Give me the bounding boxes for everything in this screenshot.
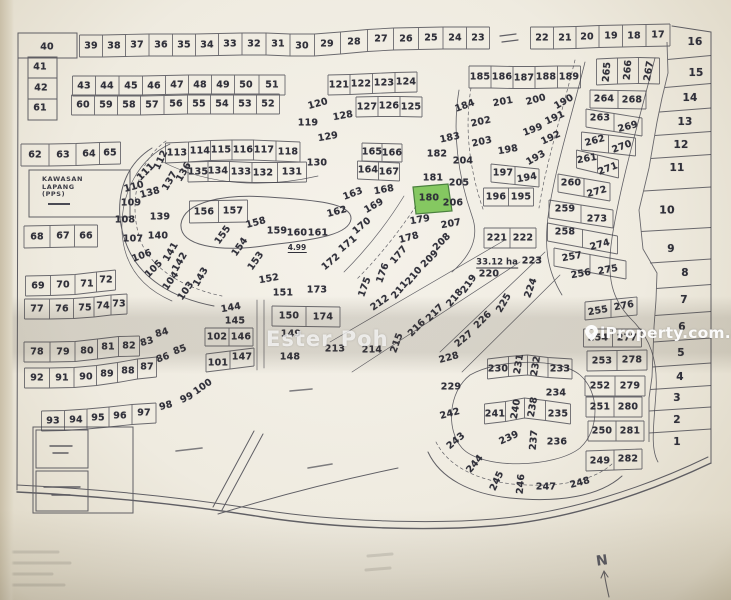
lot-116-label: 116 bbox=[233, 145, 253, 156]
lot-140-label: 140 bbox=[148, 231, 168, 242]
lot-80-label: 80 bbox=[80, 346, 94, 357]
lot-68-label: 68 bbox=[30, 232, 44, 243]
brand-watermark-text: iProperty.com.my bbox=[600, 324, 731, 342]
lot-251-label: 251 bbox=[590, 402, 610, 413]
agent-watermark: Ester Poh bbox=[266, 327, 389, 351]
lot-185-label: 185 bbox=[470, 72, 490, 83]
lot-123-label: 123 bbox=[374, 78, 394, 89]
lot-180-label[interactable]: 180 bbox=[419, 193, 439, 204]
lot-250-label: 250 bbox=[592, 426, 612, 437]
lot-109-label: 109 bbox=[121, 198, 141, 209]
lot-21-label: 21 bbox=[558, 33, 572, 44]
lot-268-label: 268 bbox=[622, 95, 642, 106]
lot-114-label: 114 bbox=[190, 146, 210, 157]
lot-205-label: 205 bbox=[449, 178, 469, 189]
lot-150-label: 150 bbox=[279, 311, 299, 322]
lot-127-label: 127 bbox=[357, 102, 377, 113]
lot-36-label: 36 bbox=[154, 40, 168, 51]
lot-74-label: 74 bbox=[96, 301, 110, 312]
lot-257-label: 257 bbox=[561, 250, 583, 264]
lot-19-label: 19 bbox=[604, 31, 618, 42]
lot-220-label: 220 bbox=[479, 269, 499, 280]
lot-13-label: 13 bbox=[677, 116, 692, 128]
lot-189-label: 189 bbox=[559, 72, 579, 83]
lot-202-label: 202 bbox=[470, 114, 492, 129]
lot-56-label: 56 bbox=[169, 99, 183, 110]
lot-221-label: 221 bbox=[487, 233, 507, 244]
lot-247-label: 247 bbox=[536, 482, 556, 493]
lot-151-label: 151 bbox=[273, 288, 293, 299]
lot-126-label: 126 bbox=[379, 101, 399, 112]
lot-91-label: 91 bbox=[55, 373, 69, 384]
lot-216-label: 216 bbox=[406, 317, 428, 339]
lot-25-label: 25 bbox=[424, 33, 438, 44]
lot-81-label: 81 bbox=[101, 342, 115, 353]
lot-184-label: 184 bbox=[454, 97, 477, 114]
lot-171-label: 171 bbox=[337, 233, 360, 255]
lot-57-label: 57 bbox=[145, 100, 159, 111]
lot-223-label: 223 bbox=[522, 256, 542, 267]
lot-196-label: 196 bbox=[486, 192, 506, 203]
lot-148-label: 148 bbox=[280, 352, 300, 363]
lot-183-label: 183 bbox=[439, 130, 461, 145]
lot-37-label: 37 bbox=[130, 40, 144, 51]
lot-15-label: 15 bbox=[688, 67, 703, 79]
lot-20-label: 20 bbox=[580, 32, 594, 43]
lot-121-label: 121 bbox=[329, 80, 349, 91]
lot-281-label: 281 bbox=[620, 426, 640, 437]
lot-105-label: 105 bbox=[143, 258, 165, 280]
lot-89-label: 89 bbox=[100, 369, 114, 380]
lot-3-label: 3 bbox=[673, 392, 681, 404]
lot-82-label: 82 bbox=[122, 341, 136, 352]
lot-1-label: 1 bbox=[673, 436, 681, 448]
lot-14-label: 14 bbox=[682, 92, 697, 104]
lot-198-label: 198 bbox=[497, 143, 519, 157]
lot-75-label: 75 bbox=[78, 303, 92, 314]
lot-133-label: 133 bbox=[231, 167, 251, 178]
lot-228-label: 228 bbox=[438, 350, 461, 366]
lot-39-label: 39 bbox=[84, 41, 98, 52]
lot-129-label: 129 bbox=[317, 130, 339, 144]
lot-245-label: 245 bbox=[488, 469, 507, 492]
lot-203-label: 203 bbox=[471, 134, 493, 149]
lot-181-label: 181 bbox=[423, 173, 443, 184]
lot-139-label: 139 bbox=[150, 212, 170, 223]
lot-234-label: 234 bbox=[546, 388, 566, 399]
lot-143-label: 143 bbox=[191, 265, 211, 288]
lot-235-label: 235 bbox=[548, 409, 568, 420]
lot-45-label: 45 bbox=[124, 81, 138, 92]
lot-244-label: 244 bbox=[464, 453, 486, 476]
lot-72-label: 72 bbox=[99, 275, 113, 286]
lot-98-label: 98 bbox=[158, 399, 174, 413]
lot-16-label: 16 bbox=[687, 36, 702, 48]
lot-269-label: 269 bbox=[617, 119, 640, 135]
lot-258-label: 258 bbox=[555, 227, 575, 238]
lot-195-label: 195 bbox=[511, 192, 531, 203]
lot-177-label: 177 bbox=[388, 244, 410, 267]
lot-261-label: 261 bbox=[576, 152, 598, 166]
brand-watermark: iProperty.com.my bbox=[585, 324, 731, 342]
lot-249-label: 249 bbox=[590, 456, 610, 467]
lot-153-label: 153 bbox=[246, 249, 267, 272]
lot-59-label: 59 bbox=[99, 100, 113, 111]
scanned-plat-map-photo: 4039383736353433323130292827262524232221… bbox=[0, 0, 731, 600]
lot-152-label: 152 bbox=[258, 272, 280, 286]
lot-194-label: 194 bbox=[516, 171, 538, 185]
lot-169-label: 169 bbox=[362, 196, 385, 216]
lot-206-label: 206 bbox=[443, 198, 463, 209]
lot-58-label: 58 bbox=[122, 100, 136, 111]
lot-78-label: 78 bbox=[30, 347, 44, 358]
lot-179-label: 179 bbox=[409, 213, 431, 227]
lot-47-label: 47 bbox=[170, 80, 184, 91]
lot-272-label: 272 bbox=[586, 184, 609, 200]
lot-30-label: 30 bbox=[295, 41, 309, 52]
lot-76-label: 76 bbox=[55, 304, 69, 315]
lot-73-label: 73 bbox=[112, 299, 126, 310]
lot-24-label: 24 bbox=[448, 33, 462, 44]
lot-191-label: 191 bbox=[543, 109, 566, 128]
lot-224-label: 224 bbox=[522, 277, 539, 300]
lot-187-label: 187 bbox=[514, 73, 534, 84]
lot-118-label: 118 bbox=[278, 147, 298, 158]
lot-274-label: 274 bbox=[589, 237, 612, 253]
lot-266-label: 266 bbox=[622, 59, 635, 80]
lot-92-label: 92 bbox=[30, 373, 44, 384]
lot-260-label: 260 bbox=[561, 178, 581, 189]
lot-186-label: 186 bbox=[492, 72, 512, 83]
lot-42-label: 42 bbox=[34, 83, 48, 94]
lot-115-label: 115 bbox=[211, 145, 231, 156]
lot-278-label: 278 bbox=[622, 355, 642, 366]
lot-233-label: 233 bbox=[550, 364, 570, 375]
lot-61-label: 61 bbox=[33, 103, 47, 114]
lot-134-label: 134 bbox=[208, 166, 228, 177]
lot-101-label: 101 bbox=[208, 358, 228, 369]
open-space-underline bbox=[48, 203, 70, 205]
lot-53-label: 53 bbox=[238, 99, 252, 110]
lot-262-label: 262 bbox=[584, 133, 607, 149]
lot-125-label: 125 bbox=[401, 102, 421, 113]
lot-170-label: 170 bbox=[351, 215, 374, 237]
lot-113-label: 113 bbox=[167, 148, 187, 159]
lot-48-label: 48 bbox=[193, 80, 207, 91]
lot-188-label: 188 bbox=[536, 72, 556, 83]
map-pin-icon bbox=[585, 325, 598, 341]
lot-119-label: 119 bbox=[298, 118, 318, 129]
lot-162-label: 162 bbox=[326, 204, 349, 220]
lot-102-label: 102 bbox=[207, 332, 227, 343]
lot-87-label: 87 bbox=[140, 362, 154, 373]
lot-50-label: 50 bbox=[239, 80, 253, 91]
lot-264-label: 264 bbox=[594, 94, 614, 105]
lot-240-label: 240 bbox=[509, 398, 523, 420]
lot-212-label: 212 bbox=[368, 293, 391, 314]
lot-273-label: 273 bbox=[587, 214, 607, 225]
lot-229-label: 229 bbox=[441, 382, 461, 393]
lot-215-label: 215 bbox=[388, 332, 405, 355]
lot-117-label: 117 bbox=[254, 145, 274, 156]
lot-99-label: 99 bbox=[179, 390, 196, 406]
lot-232-label: 232 bbox=[529, 355, 543, 377]
lot-132-label: 132 bbox=[253, 168, 273, 179]
lot-95-label: 95 bbox=[91, 413, 105, 424]
lot-12-label: 12 bbox=[673, 139, 688, 151]
lot-8-label: 8 bbox=[681, 267, 689, 279]
lot-176-label: 176 bbox=[374, 262, 391, 285]
lot-271-label: 271 bbox=[597, 160, 620, 177]
lot-23-label: 23 bbox=[471, 33, 485, 44]
lot-226-label: 226 bbox=[472, 309, 494, 331]
lot-60-label: 60 bbox=[76, 100, 90, 111]
lot-17-label: 17 bbox=[651, 30, 665, 41]
lot-5-label: 5 bbox=[677, 347, 685, 359]
lot-157-label: 157 bbox=[223, 206, 243, 217]
lot-201-label: 201 bbox=[492, 95, 514, 109]
lot-282-label: 282 bbox=[618, 454, 638, 465]
lot-172-label: 172 bbox=[320, 251, 343, 273]
lot-204-label: 204 bbox=[453, 156, 473, 167]
lot-242-label: 242 bbox=[439, 406, 462, 422]
lot-66-label: 66 bbox=[79, 231, 93, 242]
lot-27-label: 27 bbox=[374, 34, 388, 45]
lot-measure-label: 4.99 bbox=[288, 243, 307, 253]
lot-155-label: 155 bbox=[213, 223, 234, 246]
lot-231-label: 231 bbox=[512, 353, 526, 375]
lot-161-label: 161 bbox=[308, 228, 328, 239]
lot-270-label: 270 bbox=[611, 138, 634, 155]
lot-280-label: 280 bbox=[618, 402, 638, 413]
lot-38-label: 38 bbox=[107, 41, 121, 52]
lot-182-label: 182 bbox=[427, 149, 447, 160]
lot-29-label: 29 bbox=[320, 39, 334, 50]
lot-107-label: 107 bbox=[123, 234, 143, 245]
lot-43-label: 43 bbox=[77, 81, 91, 92]
lot-167-label: 167 bbox=[379, 167, 399, 178]
lot-239-label: 239 bbox=[497, 429, 520, 448]
lot-40-label: 40 bbox=[40, 42, 54, 53]
lot-4-label: 4 bbox=[676, 371, 684, 383]
lot-83-label: 83 bbox=[139, 335, 155, 349]
lot-166-label: 166 bbox=[382, 148, 402, 159]
lot-267-label: 267 bbox=[642, 60, 656, 82]
lot-22-label: 22 bbox=[535, 33, 549, 44]
lot-159-label: 159 bbox=[267, 226, 287, 237]
lot-106-label: 106 bbox=[131, 247, 154, 264]
area-label: 33.12 ha bbox=[476, 258, 518, 269]
lot-41-label: 41 bbox=[33, 62, 47, 73]
lot-217-label: 217 bbox=[424, 302, 446, 324]
lot-173-label: 173 bbox=[307, 285, 327, 296]
lot-259-label: 259 bbox=[555, 204, 575, 215]
lot-128-label: 128 bbox=[332, 109, 354, 123]
lot-93-label: 93 bbox=[46, 416, 60, 427]
lot-69-label: 69 bbox=[31, 281, 45, 292]
lot-146-label: 146 bbox=[231, 332, 251, 343]
lot-49-label: 49 bbox=[216, 80, 230, 91]
lot-9-label: 9 bbox=[667, 243, 675, 255]
north-compass-label: N bbox=[595, 552, 609, 569]
lot-94-label: 94 bbox=[69, 415, 83, 426]
lot-number-layer: 4039383736353433323130292827262524232221… bbox=[0, 0, 731, 600]
lot-63-label: 63 bbox=[56, 150, 70, 161]
lot-200-label: 200 bbox=[525, 92, 548, 108]
open-space-line3: (PPS) bbox=[42, 191, 83, 199]
lot-225-label: 225 bbox=[494, 291, 514, 314]
lot-131-label: 131 bbox=[282, 167, 302, 178]
lot-178-label: 178 bbox=[398, 230, 421, 246]
lot-164-label: 164 bbox=[358, 165, 378, 176]
lot-207-label: 207 bbox=[440, 217, 462, 231]
lot-248-label: 248 bbox=[569, 475, 592, 491]
lot-28-label: 28 bbox=[347, 37, 361, 48]
lot-71-label: 71 bbox=[80, 279, 94, 290]
lot-52-label: 52 bbox=[261, 99, 275, 110]
lot-243-label: 243 bbox=[445, 430, 468, 452]
lot-175-label: 175 bbox=[356, 276, 373, 299]
lot-34-label: 34 bbox=[200, 40, 214, 51]
lot-160-label: 160 bbox=[287, 228, 307, 239]
lot-197-label: 197 bbox=[493, 168, 513, 179]
lot-237-label: 237 bbox=[528, 429, 541, 450]
lot-100-label: 100 bbox=[191, 377, 214, 398]
lot-70-label: 70 bbox=[56, 280, 70, 291]
lot-147-label: 147 bbox=[232, 352, 252, 363]
lot-230-label: 230 bbox=[488, 364, 508, 375]
lot-145-label: 145 bbox=[225, 316, 245, 327]
lot-33-label: 33 bbox=[223, 39, 237, 50]
lot-31-label: 31 bbox=[271, 39, 285, 50]
lot-10-label: 10 bbox=[659, 204, 675, 217]
lot-211-label: 211 bbox=[389, 279, 411, 302]
lot-252-label: 252 bbox=[590, 381, 610, 392]
lot-190-label: 190 bbox=[552, 92, 575, 112]
lot-276-label: 276 bbox=[613, 299, 635, 313]
lot-168-label: 168 bbox=[373, 183, 395, 197]
lot-219-label: 219 bbox=[459, 272, 480, 295]
lot-67-label: 67 bbox=[56, 231, 70, 242]
lot-44-label: 44 bbox=[100, 81, 114, 92]
lot-158-label: 158 bbox=[245, 215, 268, 231]
lot-54-label: 54 bbox=[215, 99, 229, 110]
lot-174-label: 174 bbox=[313, 312, 333, 323]
open-space-label: KAWASAN LAPANG (PPS) bbox=[42, 176, 83, 205]
lot-241-label: 241 bbox=[485, 409, 505, 420]
lot-90-label: 90 bbox=[79, 372, 93, 383]
lot-86-label: 86 bbox=[155, 351, 172, 366]
lot-279-label: 279 bbox=[620, 381, 640, 392]
lot-253-label: 253 bbox=[592, 356, 612, 367]
lot-163-label: 163 bbox=[342, 185, 365, 202]
lot-35-label: 35 bbox=[177, 40, 191, 51]
lot-275-label: 275 bbox=[597, 263, 619, 277]
lot-46-label: 46 bbox=[147, 81, 161, 92]
lot-154-label: 154 bbox=[230, 235, 251, 258]
lot-193-label: 193 bbox=[524, 148, 547, 168]
lot-2-label: 2 bbox=[673, 414, 681, 426]
lot-88-label: 88 bbox=[121, 366, 135, 377]
lot-96-label: 96 bbox=[113, 411, 127, 422]
lot-62-label: 62 bbox=[28, 150, 42, 161]
lot-165-label: 165 bbox=[362, 147, 382, 158]
lot-97-label: 97 bbox=[137, 408, 151, 419]
lot-227-label: 227 bbox=[453, 328, 476, 350]
lot-263-label: 263 bbox=[590, 113, 610, 124]
lot-84-label: 84 bbox=[154, 326, 170, 340]
lot-130-label: 130 bbox=[307, 158, 327, 169]
lot-122-label: 122 bbox=[351, 79, 371, 90]
lot-7-label: 7 bbox=[680, 294, 688, 306]
lot-156-label: 156 bbox=[194, 207, 214, 218]
lot-85-label: 85 bbox=[172, 343, 189, 358]
lot-32-label: 32 bbox=[247, 39, 261, 50]
lot-11-label: 11 bbox=[669, 162, 684, 174]
lot-51-label: 51 bbox=[265, 80, 279, 91]
lot-77-label: 77 bbox=[30, 304, 44, 315]
lot-108-label: 108 bbox=[115, 215, 135, 226]
lot-26-label: 26 bbox=[399, 34, 413, 45]
lot-238-label: 238 bbox=[526, 396, 540, 418]
lot-124-label: 124 bbox=[396, 77, 416, 88]
lot-265-label: 265 bbox=[601, 61, 614, 82]
lot-79-label: 79 bbox=[56, 347, 70, 358]
lot-64-label: 64 bbox=[82, 149, 96, 160]
lot-18-label: 18 bbox=[627, 31, 641, 42]
lot-120-label: 120 bbox=[307, 96, 330, 112]
lot-222-label: 222 bbox=[513, 233, 533, 244]
lot-65-label: 65 bbox=[103, 148, 117, 159]
lot-246-label: 246 bbox=[515, 473, 528, 494]
lot-255-label: 255 bbox=[587, 304, 609, 318]
lot-256-label: 256 bbox=[570, 267, 592, 281]
lot-144-label: 144 bbox=[220, 301, 242, 315]
lot-55-label: 55 bbox=[192, 99, 206, 110]
lot-236-label: 236 bbox=[547, 437, 567, 448]
